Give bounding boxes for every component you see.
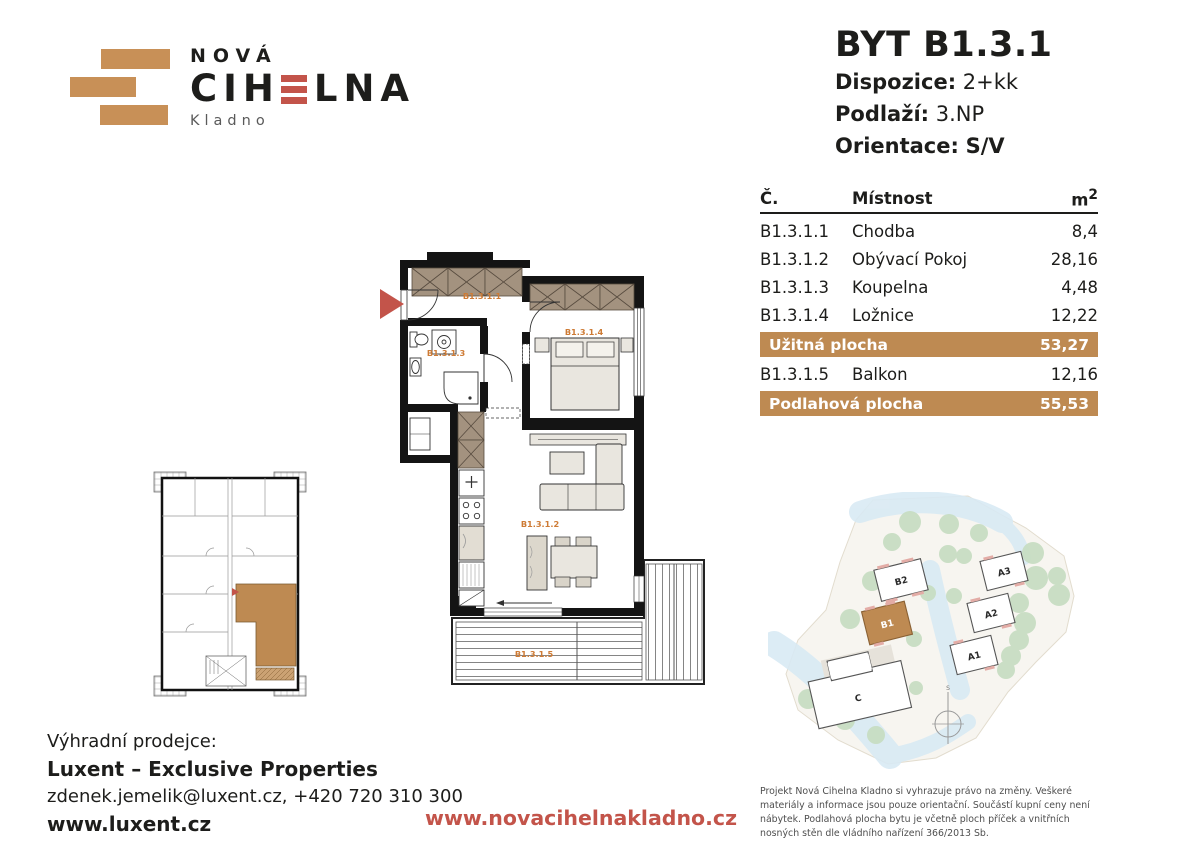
col-room: Místnost — [852, 189, 1020, 208]
spec-podlazi-value: 3.NP — [936, 102, 984, 126]
seller-intro: Výhradní prodejce: — [47, 731, 463, 752]
brand-name-main: CIH LNA — [190, 70, 415, 107]
seller-website-link[interactable]: www.luxent.cz — [47, 812, 211, 836]
spec-orientace-label: Orientace: — [835, 134, 959, 158]
label-hall: B1.3.1.1 — [463, 291, 502, 301]
spec-dispozice-label: Dispozice: — [835, 70, 956, 94]
spec-podlazi: Podlaží: 3.NP — [835, 99, 1053, 129]
brand-main-right: LNA — [314, 70, 415, 107]
site-map: B2 B1 A3 A2 A1 C — [768, 492, 1100, 788]
row-no: B1.3.1.1 — [760, 222, 852, 241]
brick-bottom — [100, 105, 168, 125]
brand-name-top: NOVÁ — [190, 45, 415, 67]
stair-core — [206, 656, 246, 686]
kitchen-strip — [459, 470, 484, 606]
row-no: B1.3.1.3 — [760, 278, 852, 297]
room-table: Č. Místnost m2 B1.3.1.1 Chodba 8,4 B1.3.… — [760, 186, 1098, 419]
table-header: Č. Místnost m2 — [760, 186, 1098, 210]
table-row: B1.3.1.4 Ložnice 12,22 — [760, 301, 1098, 329]
row-room: Koupelna — [852, 278, 1020, 297]
table-header-rule — [760, 212, 1098, 214]
total-area-value: 55,53 — [1040, 395, 1089, 413]
col-area: m2 — [1020, 187, 1098, 210]
floor-overview-map — [146, 464, 314, 704]
entrance-arrow-icon — [380, 289, 404, 319]
row-area: 28,16 — [1020, 250, 1098, 269]
project-website-link[interactable]: www.novacihelnakladno.cz — [425, 806, 737, 830]
spec-dispozice-value: 2+kk — [963, 70, 1018, 94]
brand-logo: NOVÁ CIH LNA Kladno — [190, 45, 415, 129]
table-row: B1.3.1.2 Obývací Pokoj 28,16 — [760, 245, 1098, 273]
living-furniture — [527, 444, 624, 590]
row-no: B1.3.1.5 — [760, 365, 852, 384]
brand-main-left: CIH — [190, 70, 280, 107]
label-bath: B1.3.1.3 — [427, 348, 466, 358]
col-number: Č. — [760, 189, 852, 208]
row-area: 12,22 — [1020, 306, 1098, 325]
disclaimer-text: Projekt Nová Cihelna Kladno si vyhrazuje… — [760, 785, 1108, 841]
row-area: 8,4 — [1020, 222, 1098, 241]
table-row-balcony: B1.3.1.5 Balkon 12,16 — [760, 360, 1098, 388]
usable-area-value: 53,27 — [1040, 336, 1089, 354]
row-area: 12,16 — [1020, 365, 1098, 384]
total-area-bar: Podlahová plocha 55,53 — [760, 391, 1098, 416]
label-balcony: B1.3.1.5 — [515, 649, 554, 659]
total-area-label: Podlahová plocha — [769, 395, 923, 413]
usable-area-label: Užitná plocha — [769, 336, 888, 354]
apartment-floorplan: B1.3.1.1 B1.3.1.3 B1.3.1.4 B1.3.1.2 B1.3… — [372, 246, 712, 694]
brick-e-icon — [281, 75, 307, 105]
seller-name: Luxent – Exclusive Properties — [47, 757, 463, 781]
highlighted-unit-balcony — [256, 668, 294, 680]
row-area: 4,48 — [1020, 278, 1098, 297]
unit-header: BYT B1.3.1 Dispozice: 2+kk Podlaží: 3.NP… — [835, 26, 1053, 161]
spec-dispozice: Dispozice: 2+kk — [835, 67, 1053, 97]
usable-area-bar: Užitná plocha 53,27 — [760, 332, 1098, 357]
table-row: B1.3.1.1 Chodba 8,4 — [760, 217, 1098, 245]
brand-bricks-icon — [63, 47, 175, 127]
label-living: B1.3.1.2 — [521, 519, 559, 529]
spec-orientace-value: S/V — [966, 134, 1005, 158]
label-bedroom: B1.3.1.4 — [565, 327, 604, 337]
brick-middle — [70, 77, 136, 97]
row-room: Ložnice — [852, 306, 1020, 325]
brick-top — [101, 49, 170, 69]
seller-contact[interactable]: zdenek.jemelik@luxent.cz, +420 720 310 3… — [47, 786, 463, 807]
brand-city: Kladno — [190, 113, 415, 129]
row-room: Obývací Pokoj — [852, 250, 1020, 269]
table-row: B1.3.1.3 Koupelna 4,48 — [760, 273, 1098, 301]
spec-podlazi-label: Podlaží: — [835, 102, 929, 126]
row-no: B1.3.1.4 — [760, 306, 852, 325]
seller-block: Výhradní prodejce: Luxent – Exclusive Pr… — [47, 731, 463, 836]
row-room: Chodba — [852, 222, 1020, 241]
unit-title: BYT B1.3.1 — [835, 26, 1053, 65]
spec-orientace: Orientace: S/V — [835, 131, 1053, 161]
row-room: Balkon — [852, 365, 1020, 384]
brochure-page: NOVÁ CIH LNA Kladno BYT B1.3.1 Dispozice… — [0, 0, 1199, 845]
row-no: B1.3.1.2 — [760, 250, 852, 269]
svg-text:S: S — [946, 685, 950, 692]
